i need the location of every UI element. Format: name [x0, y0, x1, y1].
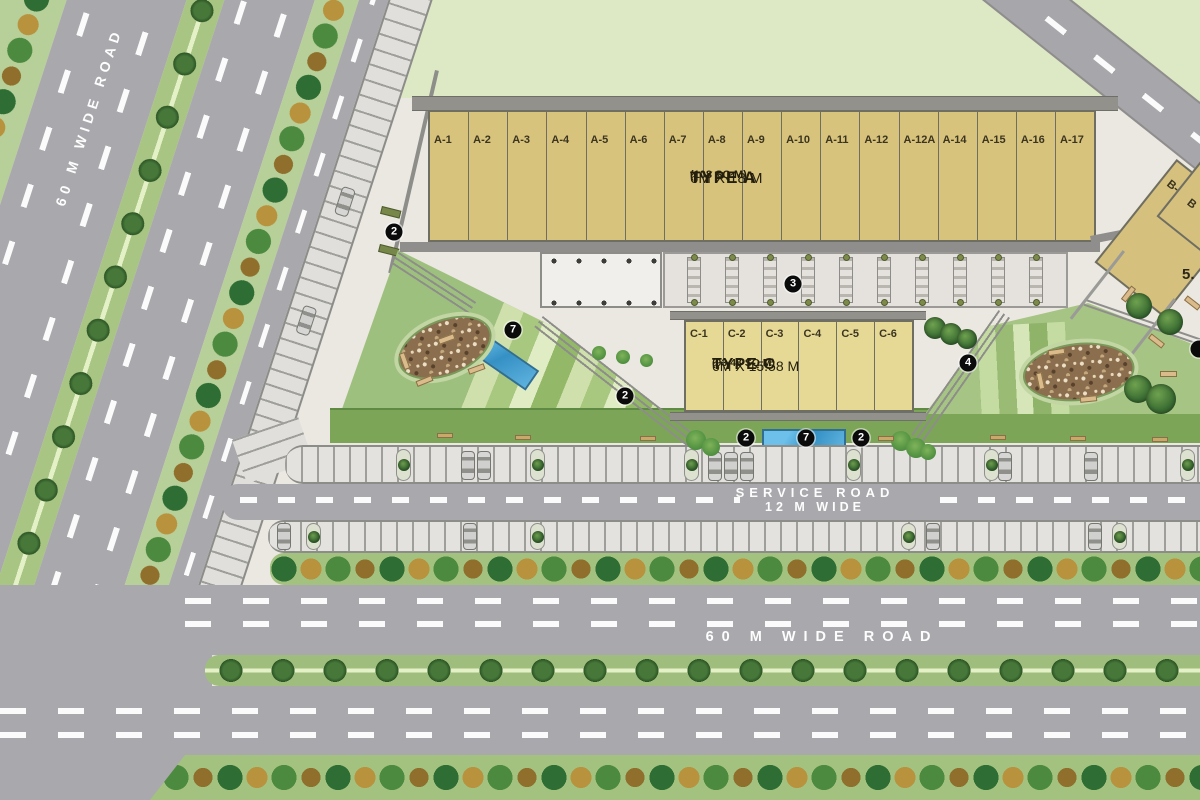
type-c-area: (93.48 SQ.M): [712, 357, 775, 369]
map-marker-partial: [1191, 341, 1200, 358]
type-a-area: (108 SQ.M): [690, 169, 747, 181]
markers-layer: 27232724: [0, 0, 1200, 800]
map-marker-2: 2: [386, 224, 403, 241]
site-plan-canvas: 60 M WIDE ROAD: [0, 0, 1200, 800]
map-marker-2: 2: [738, 430, 755, 447]
map-marker-4: 4: [960, 355, 977, 372]
map-marker-2: 2: [853, 430, 870, 447]
map-marker-3: 3: [785, 276, 802, 293]
map-marker-7: 7: [505, 322, 522, 339]
map-marker-7: 7: [798, 430, 815, 447]
map-marker-2: 2: [617, 388, 634, 405]
